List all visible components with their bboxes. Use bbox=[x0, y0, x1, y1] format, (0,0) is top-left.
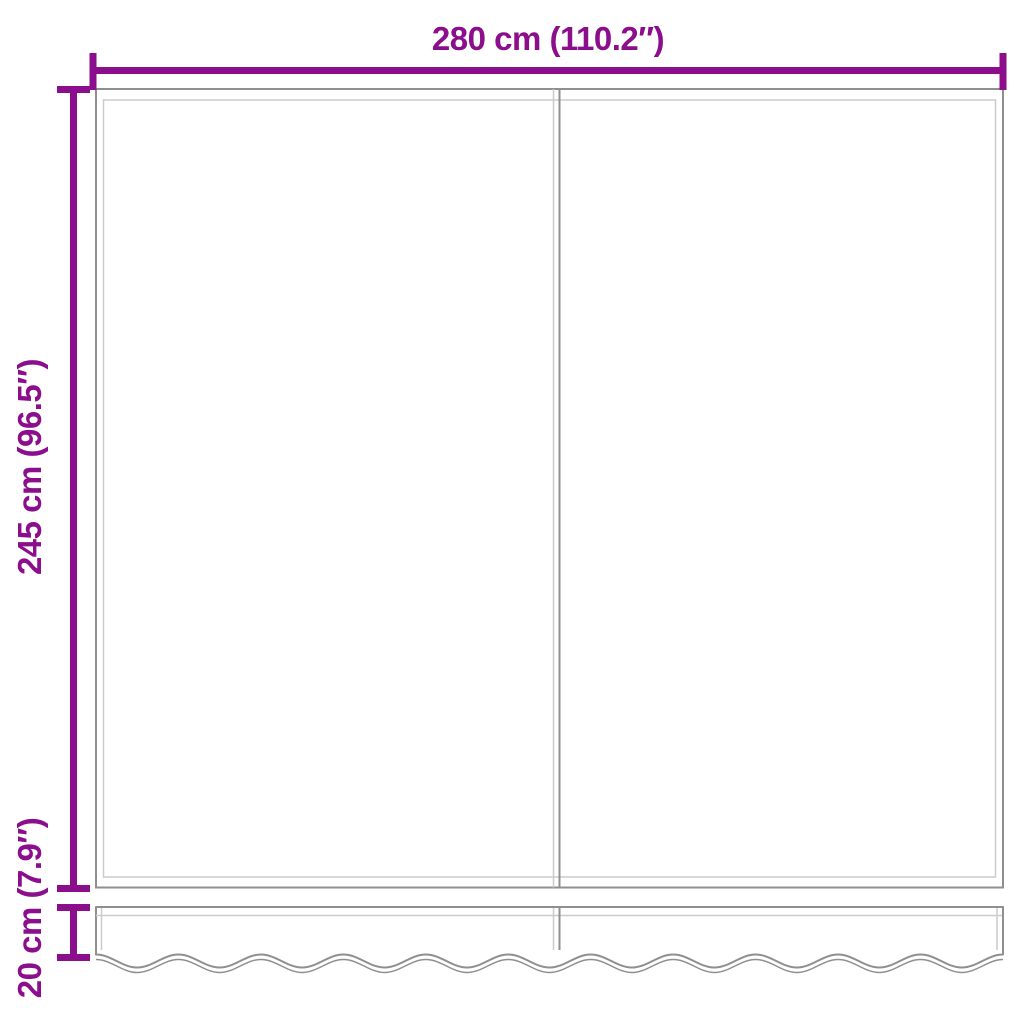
valance-dimension-bottom-tick bbox=[57, 954, 90, 961]
height-dimension-top-tick bbox=[57, 86, 90, 93]
main-fabric-panel bbox=[96, 89, 1003, 888]
width-dimension-left-tick bbox=[90, 53, 97, 90]
valance-dimension-top-tick bbox=[57, 904, 90, 911]
height-dimension-bottom-tick bbox=[57, 885, 90, 892]
width-dimension-line bbox=[93, 67, 1003, 74]
diagram-drawing bbox=[0, 0, 1024, 1024]
valance-strip bbox=[96, 907, 1003, 973]
width-dimension-label: 280 cm (110.2″) bbox=[93, 20, 1003, 58]
height-dimension-label: 245 cm (96.5″) bbox=[11, 359, 49, 575]
awning-fabric-dimension-diagram: 280 cm (110.2″) 245 cm (96.5″) 20 cm (7.… bbox=[0, 0, 1024, 1024]
valance-dimension-line bbox=[70, 907, 77, 958]
height-dimension-line bbox=[70, 89, 77, 888]
valance-dimension-label: 20 cm (7.9″) bbox=[11, 818, 49, 998]
fabric-outer-edge bbox=[96, 89, 1003, 888]
width-dimension-right-tick bbox=[1000, 53, 1007, 90]
